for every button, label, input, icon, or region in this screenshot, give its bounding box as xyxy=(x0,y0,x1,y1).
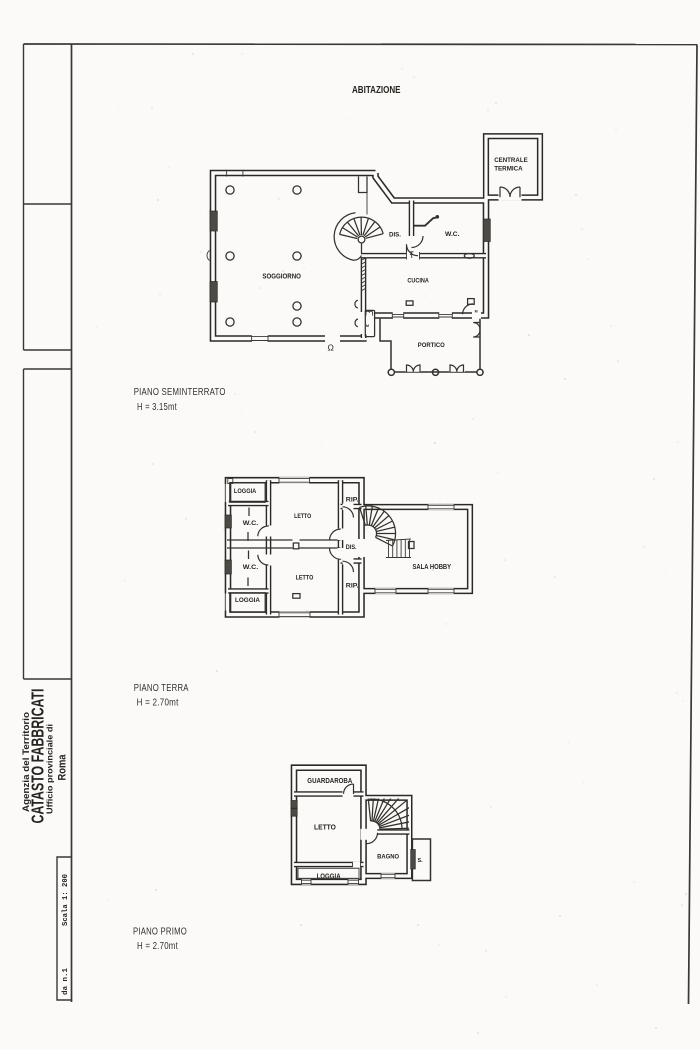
svg-text:S.: S. xyxy=(418,858,424,864)
svg-text:CATASTO FABBRICATI: CATASTO FABBRICATI xyxy=(28,689,48,824)
svg-text:PIANO SEMINTERRATO: PIANO SEMINTERRATO xyxy=(134,387,226,398)
svg-text:PIANO TERRA: PIANO TERRA xyxy=(134,683,189,694)
svg-text:LOGGIA: LOGGIA xyxy=(317,874,341,881)
svg-text:LETTO: LETTO xyxy=(294,513,311,520)
svg-text:W.C.: W.C. xyxy=(445,231,460,238)
svg-text:LOGGIA: LOGGIA xyxy=(234,489,257,495)
svg-text:DIS.: DIS. xyxy=(346,545,357,551)
svg-text:CENTRALE: CENTRALE xyxy=(494,157,528,164)
svg-text:BAGNO: BAGNO xyxy=(377,853,399,860)
svg-text:SALA HOBBY: SALA HOBBY xyxy=(413,564,452,571)
svg-text:H = 2.70mt: H = 2.70mt xyxy=(137,698,179,709)
svg-text:ABITAZIONE: ABITAZIONE xyxy=(352,85,401,96)
svg-text:DIS.: DIS. xyxy=(389,231,401,238)
svg-text:Scala 1: 200: Scala 1: 200 xyxy=(62,874,70,926)
svg-text:H = 2.70mt: H = 2.70mt xyxy=(137,941,178,952)
svg-text:da n.1: da n.1 xyxy=(62,968,70,995)
svg-text:PORTICO: PORTICO xyxy=(418,342,445,349)
svg-text:W.C.: W.C. xyxy=(243,521,259,527)
svg-text:CUCINA: CUCINA xyxy=(407,278,429,285)
svg-text:LETTO: LETTO xyxy=(314,825,336,832)
svg-text:RIP.: RIP. xyxy=(346,583,359,589)
svg-text:TERMICA: TERMICA xyxy=(494,165,523,172)
svg-text:Ω: Ω xyxy=(328,343,334,353)
svg-text:PIANO PRIMO: PIANO PRIMO xyxy=(133,926,187,937)
svg-text:GUARDAROBA: GUARDAROBA xyxy=(307,778,352,785)
svg-text:Roma: Roma xyxy=(57,754,69,781)
svg-text:Ufficio provinciale di: Ufficio provinciale di xyxy=(46,724,55,814)
svg-text:LOGGIA: LOGGIA xyxy=(235,598,261,604)
svg-text:W.C.: W.C. xyxy=(243,565,259,571)
svg-text:M: M xyxy=(366,324,369,328)
svg-text:M: M xyxy=(475,310,478,314)
svg-text:H = 3.15mt: H = 3.15mt xyxy=(137,402,177,413)
svg-text:RIP.: RIP. xyxy=(346,498,359,504)
svg-text:SOGGIORNO: SOGGIORNO xyxy=(262,274,301,281)
svg-text:LETTO: LETTO xyxy=(296,575,314,582)
